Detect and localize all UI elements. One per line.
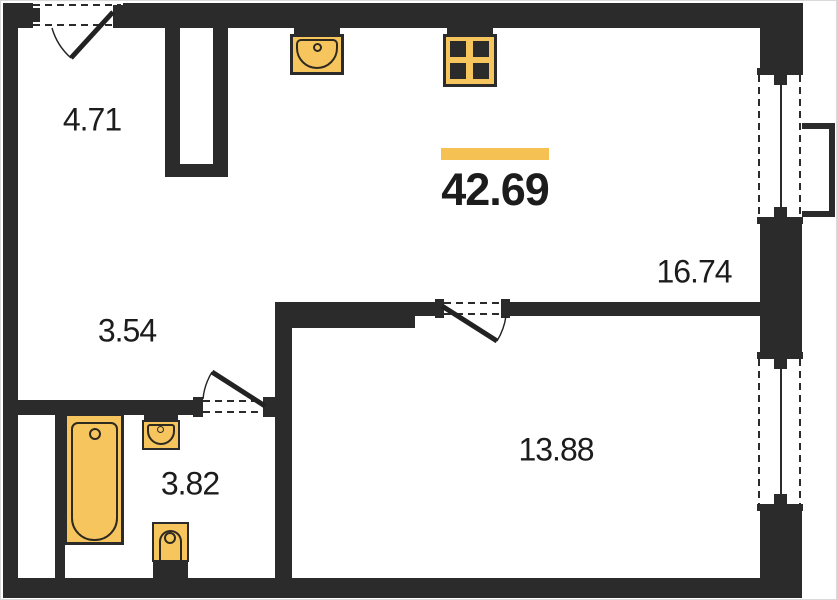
- bath-door-arc: [203, 372, 212, 399]
- balcony-edge-bottom: [802, 211, 835, 217]
- window-2-dash-left: [758, 359, 760, 504]
- stove-burner-3: [450, 63, 466, 79]
- living-door-arc: [497, 316, 506, 341]
- wall-mid-thin-left: [415, 302, 437, 316]
- window-2-sill-bottom: [757, 504, 803, 511]
- door-swing-overlay: [0, 0, 837, 600]
- living-door-jamb-left: [435, 299, 444, 318]
- wall-mid-thin-right: [510, 302, 760, 316]
- window-1-dash-left: [758, 75, 760, 217]
- wall-left: [3, 3, 18, 598]
- room-area-bedroom: 13.88: [518, 432, 593, 469]
- wall-mid-thick: [275, 302, 415, 328]
- entry-door-hinge-plate: [31, 8, 40, 22]
- window-2-frame-bottom: [774, 494, 787, 504]
- window-1-sill-bottom: [757, 217, 803, 224]
- total-area-label: 42.69: [441, 164, 549, 216]
- entry-door-arc: [52, 28, 71, 58]
- bathtub-drain: [89, 428, 101, 440]
- window-1-dash-right: [799, 75, 801, 217]
- wall-right-middle: [760, 224, 802, 352]
- wall-top: [123, 3, 803, 28]
- entry-door-leaf: [71, 12, 113, 58]
- bath-door-dash-top: [203, 400, 263, 402]
- bath-door-jamb-left: [193, 397, 203, 417]
- vent-shaft-inner: [180, 28, 213, 164]
- window-2-frame-top: [774, 359, 787, 369]
- window-2-dash-right: [799, 359, 801, 504]
- wall-right-upper: [760, 3, 803, 70]
- stove-burner-2: [473, 41, 489, 57]
- entry-door-dash-bottom: [33, 24, 121, 26]
- total-area-accent-bar: [441, 148, 549, 160]
- room-area-entry-hall: 4.71: [63, 102, 121, 139]
- window-2-sill-top: [757, 352, 803, 359]
- kitchen-sink-drain: [313, 43, 322, 52]
- wall-right-lower: [760, 511, 802, 598]
- wall-bottom: [3, 578, 802, 598]
- wall-top-left-stub: [3, 3, 33, 28]
- window-1-center-line: [780, 85, 782, 207]
- bath-door-jamb-right: [263, 397, 275, 417]
- entry-door-dash-top: [33, 4, 121, 6]
- bath-door-dash-bottom: [203, 411, 263, 413]
- living-door-dash-bottom: [444, 313, 501, 315]
- living-door-dash-top: [444, 302, 501, 304]
- stove-burner-1: [450, 41, 466, 57]
- toilet-tank: [153, 561, 188, 578]
- floor-plan: 42.69 4.71 3.54 3.82 16.74 13.88: [0, 0, 837, 600]
- window-1-frame-top: [774, 75, 787, 85]
- room-area-kitchen-living: 16.74: [656, 254, 731, 291]
- window-2-center-line: [780, 369, 782, 495]
- window-1-frame-bottom: [774, 207, 787, 217]
- room-area-corridor: 3.54: [98, 313, 156, 350]
- balcony-edge-right: [829, 123, 835, 217]
- toilet-flush-circle: [164, 532, 176, 544]
- living-door-leaf: [442, 306, 497, 341]
- window-1-sill-top: [757, 68, 803, 75]
- room-area-bathroom: 3.82: [161, 466, 219, 503]
- living-door-jamb-right: [501, 299, 510, 318]
- stove-burner-4: [473, 63, 489, 79]
- wall-vertical-divider: [275, 302, 292, 580]
- entry-door-jamb-right: [113, 5, 123, 28]
- washbasin-drain: [157, 426, 164, 433]
